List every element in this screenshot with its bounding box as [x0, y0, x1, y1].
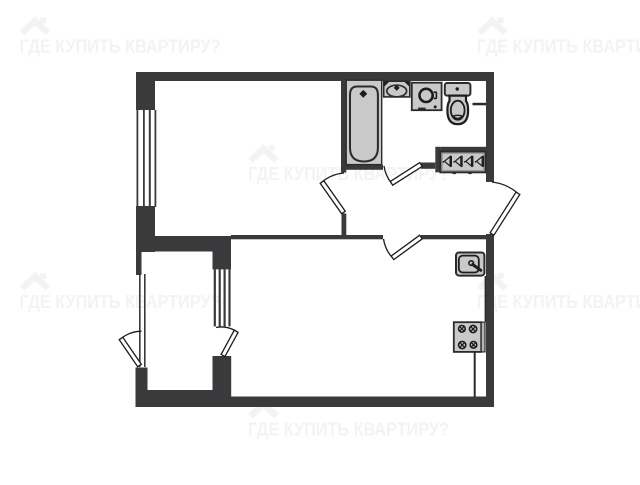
svg-text:ГДЕ КУПИТЬ КВАРТИРУ?: ГДЕ КУПИТЬ КВАРТИРУ?	[477, 292, 640, 312]
svg-text:ГДЕ КУПИТЬ КВАРТИРУ?: ГДЕ КУПИТЬ КВАРТИРУ?	[248, 420, 449, 440]
svg-text:ГДЕ КУПИТЬ КВАРТИРУ?: ГДЕ КУПИТЬ КВАРТИРУ?	[477, 37, 640, 57]
svg-text:ГДЕ КУПИТЬ КВАРТИРУ?: ГДЕ КУПИТЬ КВАРТИРУ?	[20, 292, 221, 312]
svg-text:ГДЕ КУПИТЬ КВАРТИРУ?: ГДЕ КУПИТЬ КВАРТИРУ?	[20, 37, 221, 57]
